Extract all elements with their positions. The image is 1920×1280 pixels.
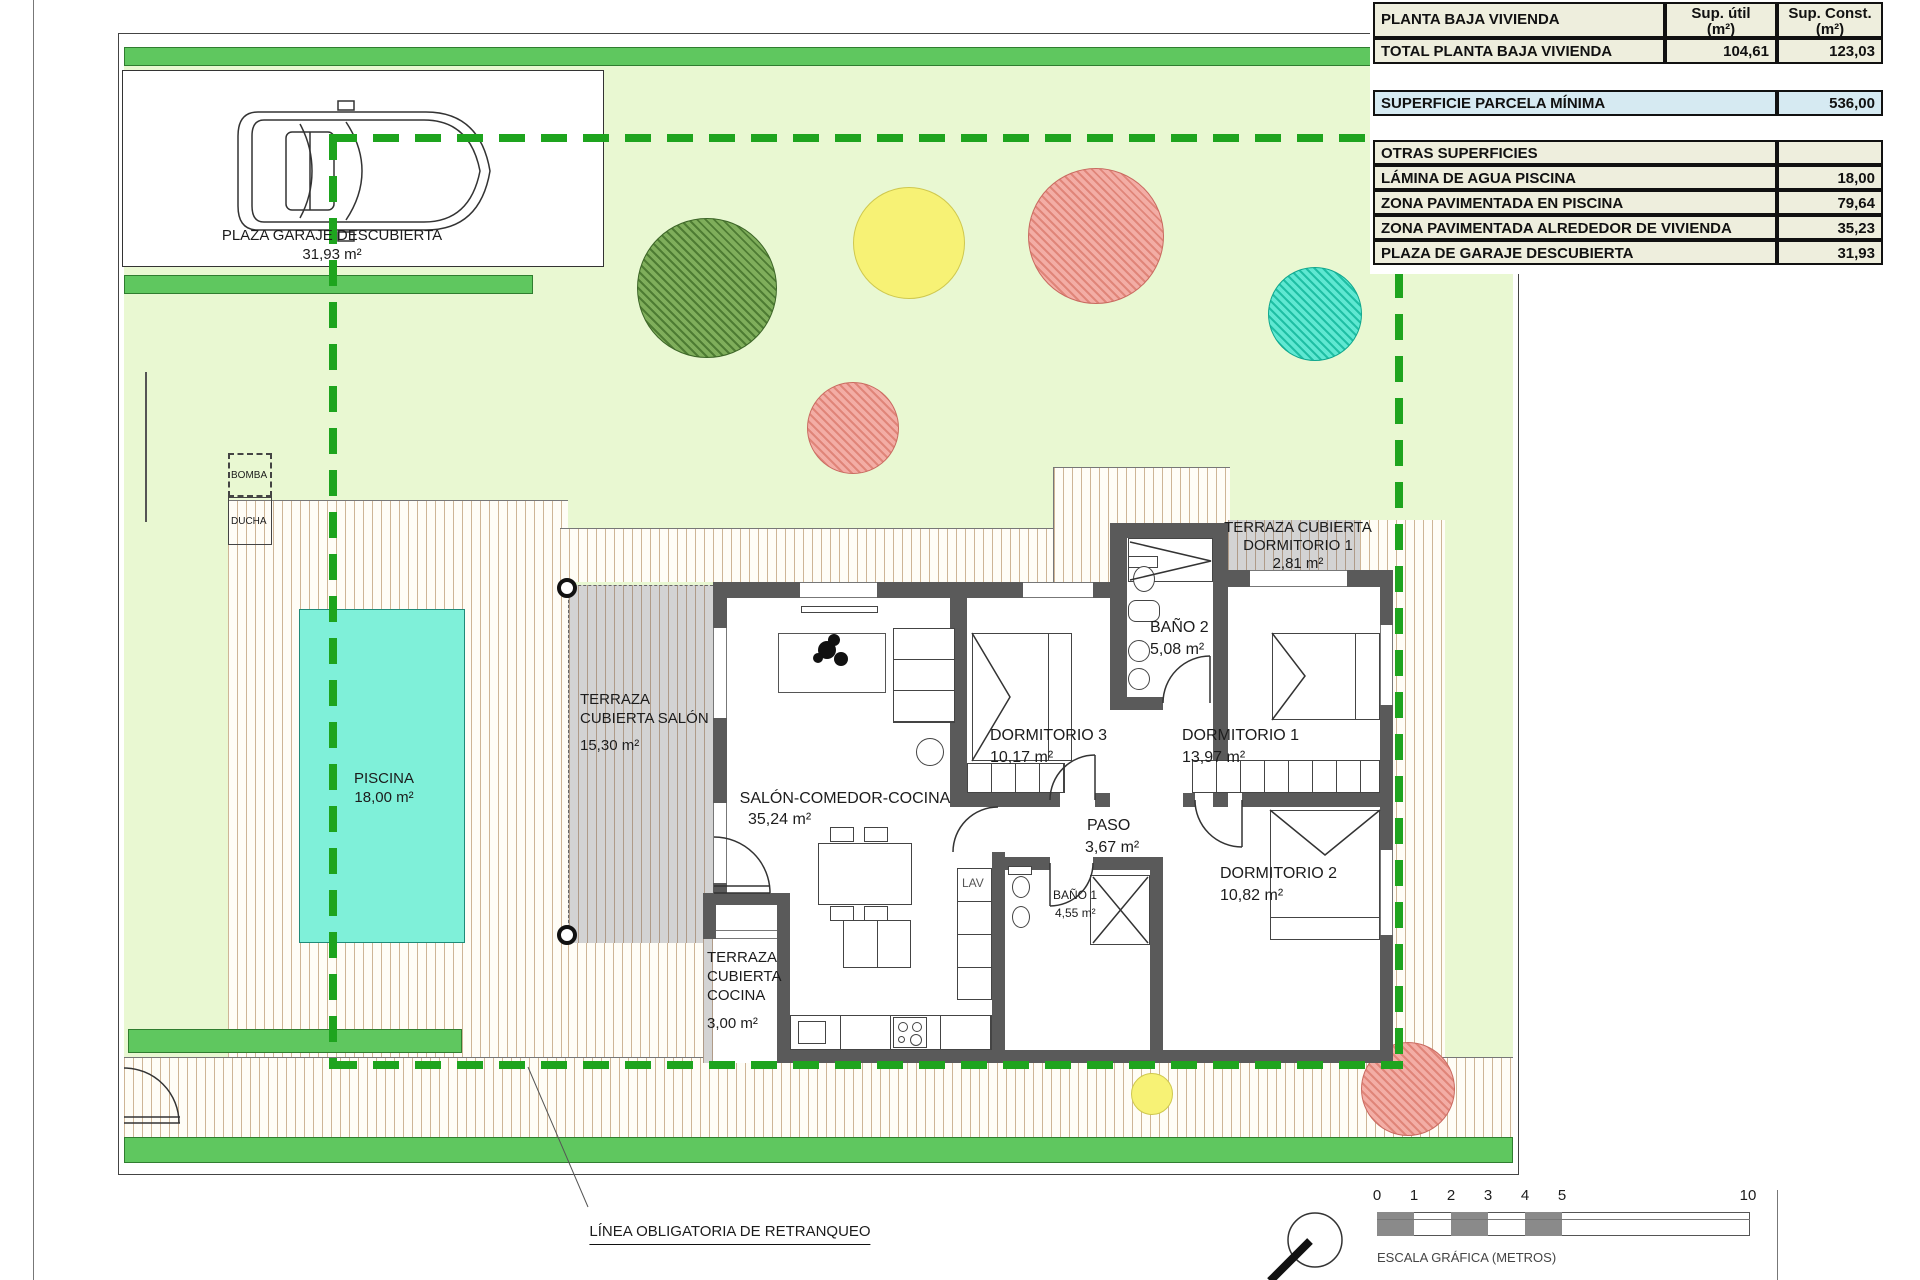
scale-bar-segment	[1451, 1212, 1488, 1236]
bedroom3-area: 10,17 m²	[990, 748, 1053, 767]
table-row-total-label: TOTAL PLANTA BAJA VIVIENDA	[1373, 38, 1665, 64]
living-area: 35,24 m²	[748, 810, 811, 829]
scale-bar-body	[1377, 1212, 1750, 1236]
setback-line-label: LÍNEA OBLIGATORIA DE RETRANQUEO	[589, 1222, 870, 1245]
bedroom1-area: 13,97 m²	[1182, 748, 1245, 767]
pool-area: 18,00 m²	[354, 788, 413, 807]
shower-label: DUCHA	[231, 516, 267, 528]
living-label: SALÓN-COMEDOR-COCINA	[740, 789, 951, 808]
scale-tick: 4	[1521, 1186, 1529, 1205]
hall-area: 3,67 m²	[1085, 838, 1139, 857]
terrace-kitchen-label: TERRAZA CUBIERTA COCINA	[707, 948, 797, 1005]
table-header-util: Sup. útil(m²)	[1665, 2, 1777, 38]
setback-line-right	[1395, 272, 1403, 1069]
scale-bar-segment	[1525, 1212, 1562, 1236]
bedroom2-area: 10,82 m²	[1220, 886, 1283, 905]
terrace-bedroom1-area: 2,81 m²	[1273, 554, 1324, 573]
table-row-value: 79,64	[1777, 190, 1883, 215]
scale-tick: 5	[1558, 1186, 1566, 1205]
table-row-parcel-label: SUPERFICIE PARCELA MÍNIMA	[1373, 90, 1777, 116]
table-row-total-util: 104,61	[1665, 38, 1777, 64]
bath1-area: 4,55 m²	[1055, 906, 1096, 920]
site-plan: PLAZA GARAJE DESCUBIERTA 31,93 m² BOMBA …	[0, 0, 1920, 1280]
hall-label: PASO	[1087, 816, 1130, 835]
terrace-living-label: TERRAZA CUBIERTA SALÓN	[580, 690, 715, 728]
scale-tick: 2	[1447, 1186, 1455, 1205]
pool-label: PISCINA	[354, 769, 414, 788]
table-otras-header: OTRAS SUPERFICIES	[1373, 140, 1777, 165]
setback-line-left	[329, 134, 337, 1069]
laundry-label: LAV	[962, 876, 984, 890]
table-row-label: LÁMINA DE AGUA PISCINA	[1373, 165, 1777, 190]
terrace-kitchen-area: 3,00 m²	[707, 1014, 758, 1033]
garage-label: PLAZA GARAJE DESCUBIERTA	[222, 226, 442, 245]
bath1-label: BAÑO 1	[1053, 888, 1097, 902]
table-row-value: 31,93	[1777, 240, 1883, 265]
terrace-living-area: 15,30 m²	[580, 736, 639, 755]
table-header-room: PLANTA BAJA VIVIENDA	[1373, 2, 1665, 38]
table-otras-header-empty	[1777, 140, 1883, 165]
pump-label: BOMBA	[231, 470, 267, 482]
bath2-area: 5,08 m²	[1150, 640, 1204, 659]
table-header-const: Sup. Const.(m²)	[1777, 2, 1883, 38]
bath2-label: BAÑO 2	[1150, 618, 1209, 637]
scale-bar-segment	[1377, 1212, 1414, 1236]
setback-line-top	[331, 134, 1373, 142]
table-row-label: PLAZA DE GARAJE DESCUBIERTA	[1373, 240, 1777, 265]
table-row-label: ZONA PAVIMENTADA EN PISCINA	[1373, 190, 1777, 215]
bedroom1-label: DORMITORIO 1	[1182, 726, 1299, 745]
terrace-bedroom1-label: TERRAZA CUBIERTA DORMITORIO 1	[1212, 519, 1384, 555]
scale-tick: 1	[1410, 1186, 1418, 1205]
table-row-parcel-value: 536,00	[1777, 90, 1883, 116]
setback-line-bottom	[331, 1061, 1403, 1069]
table-row-total-const: 123,03	[1777, 38, 1883, 64]
scale-tick: 0	[1373, 1186, 1381, 1205]
scale-bar-midline	[1377, 1219, 1750, 1220]
scale-tick: 3	[1484, 1186, 1492, 1205]
scale-bar-caption: ESCALA GRÁFICA (METROS)	[1377, 1248, 1556, 1267]
scale-tick: 10	[1740, 1186, 1757, 1205]
table-row-value: 18,00	[1777, 165, 1883, 190]
bedroom3-label: DORMITORIO 3	[990, 726, 1107, 745]
table-row-label: ZONA PAVIMENTADA ALREDEDOR DE VIVIENDA	[1373, 215, 1777, 240]
table-row-value: 35,23	[1777, 215, 1883, 240]
garage-area: 31,93 m²	[302, 245, 361, 264]
bedroom2-label: DORMITORIO 2	[1220, 864, 1337, 883]
